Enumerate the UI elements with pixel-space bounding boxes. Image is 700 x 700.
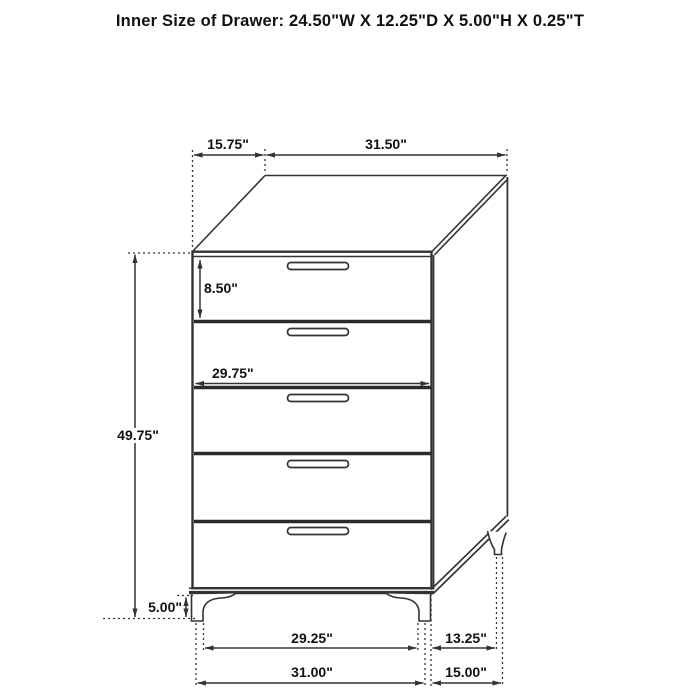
rear-right-leg [488,531,507,555]
drawer-2-handle [288,329,349,336]
dim-leg-height-label: 5.00" [122,600,182,615]
drawer-3-handle [288,395,349,402]
drawer-1-handle [288,263,349,270]
drawer-4-handle [288,461,349,468]
dim-inner-width-label: 29.75" [212,366,254,381]
dim-overall-width-label: 31.00" [262,665,362,680]
front-left-leg [192,594,236,622]
dim-top-depth-label: 15.75" [190,137,266,152]
chest-front-face [193,252,432,589]
drawer-dividers [194,322,431,522]
dim-overall-depth-label: 15.00" [416,665,516,680]
dimension-lines [135,155,506,683]
dim-body-height-label: 49.75" [103,428,173,443]
chest-legs [192,531,507,621]
dim-leg-span-side-label: 13.25" [416,631,516,646]
dim-top-width-label: 31.50" [336,137,436,152]
drawer-handles [288,263,349,535]
chest-diagram [0,0,700,700]
dim-leg-span-front-label: 29.25" [262,631,362,646]
dim-drawer-height-label: 8.50" [204,281,238,296]
drawer-5-handle [288,528,349,535]
chest-top-panel [193,176,509,257]
front-right-leg [387,594,431,622]
product-dimension-diagram: Inner Size of Drawer: 24.50"W X 12.25"D … [0,0,700,700]
chest-base-rail [189,588,434,592]
